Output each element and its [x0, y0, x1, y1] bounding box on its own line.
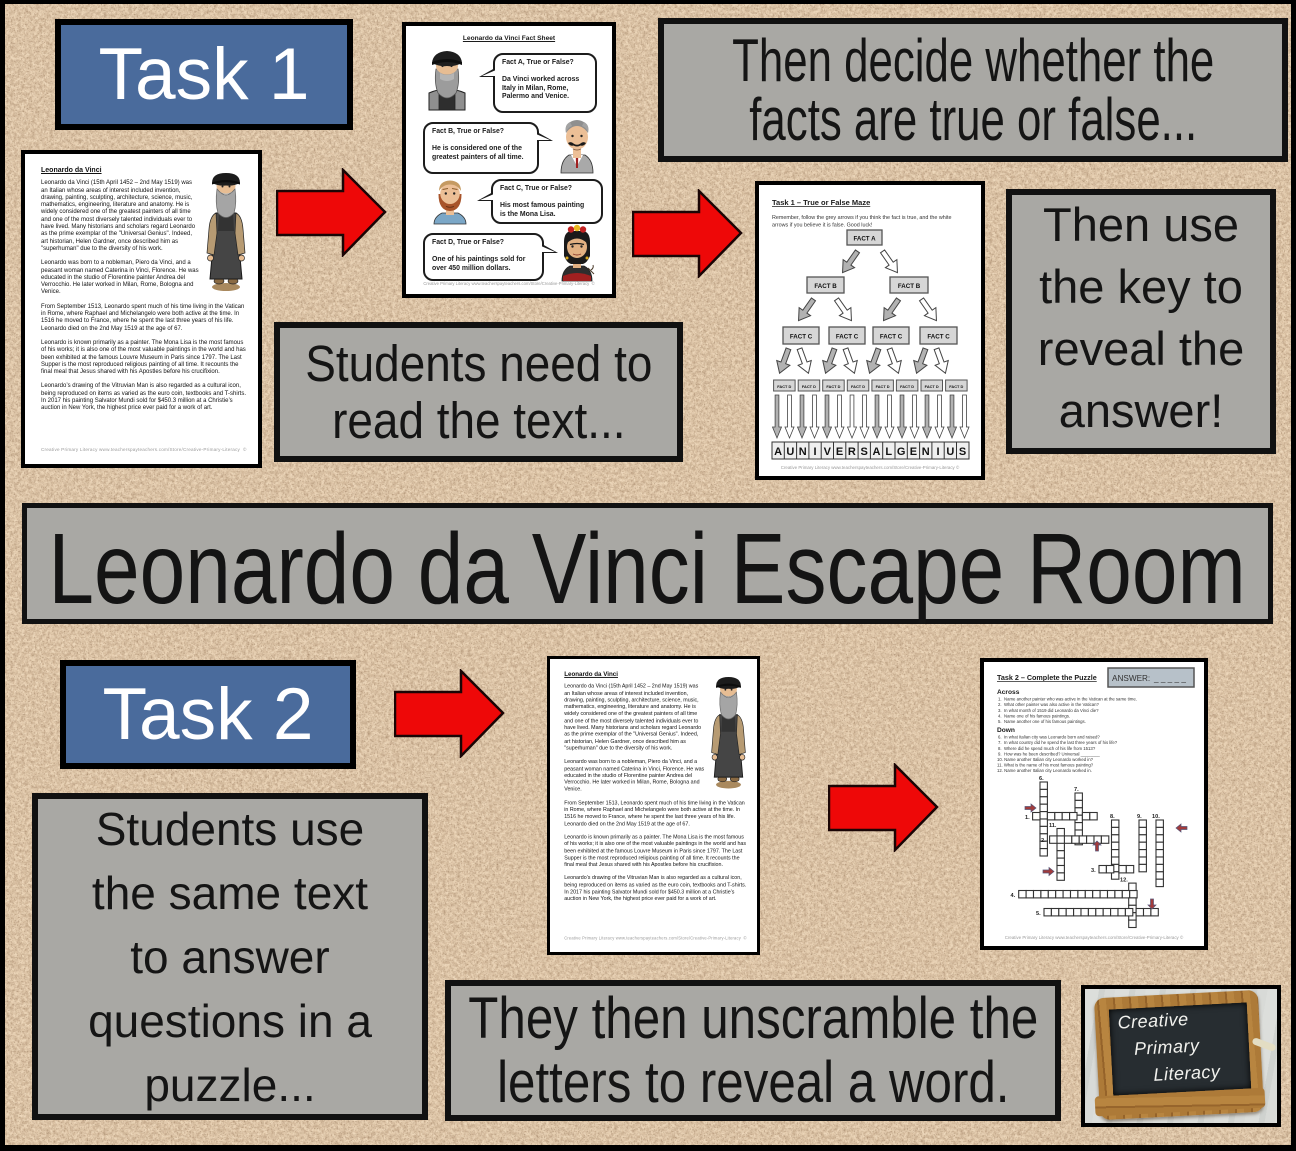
svg-text:2.: 2. [1041, 838, 1046, 844]
svg-text:Down: Down [997, 727, 1015, 734]
svg-text:E: E [910, 446, 917, 458]
svg-text:FACT C: FACT C [836, 334, 859, 341]
svg-text:FACT D: FACT D [925, 384, 939, 389]
svg-text:FACT D: FACT D [876, 384, 890, 389]
svg-text:E: E [836, 446, 843, 458]
svg-text:9.: 9. [1137, 814, 1142, 820]
svg-text:Task 2 – Complete the Puzzle: Task 2 – Complete the Puzzle [997, 673, 1097, 682]
svg-text:I: I [936, 446, 939, 458]
svg-text:FACT B: FACT B [898, 283, 921, 290]
svg-text:arrows if you believe it is fa: arrows if you believe it is false. Good … [772, 223, 873, 229]
svg-text:7.: 7. [1074, 787, 1079, 793]
svg-text:1.: 1. [1025, 815, 1030, 821]
svg-text:I: I [813, 446, 816, 458]
svg-text:U: U [786, 446, 794, 458]
svg-text:4.: 4. [1011, 893, 1016, 899]
svg-text:FACT D: FACT D [777, 384, 791, 389]
svg-text:U: U [946, 446, 954, 458]
svg-text:R: R [848, 446, 856, 458]
svg-text:4. Name one of his famous pai: 4. Name one of his famous paintings. [998, 713, 1070, 718]
svg-text:Task 1 – True or False Maze: Task 1 – True or False Maze [772, 198, 870, 207]
svg-text:Creative Primary Literacy www.: Creative Primary Literacy www.teacherspa… [781, 465, 960, 470]
svg-text:_ _ _ _ _: _ _ _ _ _ [1153, 674, 1186, 683]
svg-text:FACT B: FACT B [814, 283, 837, 290]
svg-text:9. How was he been described?: 9. How was he been described? Universal … [998, 751, 1100, 756]
svg-text:FACT A: FACT A [853, 236, 876, 243]
svg-text:FACT D: FACT D [802, 384, 816, 389]
svg-text:12.: 12. [1120, 878, 1128, 884]
svg-text:12. Name another Italian city: 12. Name another Italian city Leonardo w… [997, 768, 1092, 773]
svg-text:10.: 10. [1152, 814, 1160, 820]
svg-text:S: S [861, 446, 868, 458]
svg-text:A: A [873, 446, 881, 458]
svg-text:FACT D: FACT D [949, 384, 963, 389]
svg-text:8. Where did he spend much of: 8. Where did he spend much of his life f… [998, 746, 1096, 751]
svg-text:Across: Across [997, 689, 1020, 696]
svg-text:FACT C: FACT C [880, 334, 903, 341]
svg-text:10. Name another Italian city: 10. Name another Italian city Leonardo w… [997, 757, 1094, 762]
svg-text:5.: 5. [1036, 911, 1041, 917]
svg-text:FACT C: FACT C [790, 334, 813, 341]
svg-text:6. In what Italian city was L: 6. In what Italian city was Leonardo bor… [998, 735, 1100, 740]
svg-text:2. What other painter was als: 2. What other painter was also active in… [998, 702, 1100, 707]
svg-text:FACT D: FACT D [826, 384, 840, 389]
svg-text:3.: 3. [1091, 868, 1096, 874]
svg-text:5. Name another one of his fa: 5. Name another one of his famous painti… [998, 719, 1086, 724]
svg-text:11. What is the name of his mo: 11. What is the name of his most famous … [997, 763, 1094, 768]
svg-text:1. Name another painter who w: 1. Name another painter who was active i… [998, 697, 1137, 702]
svg-text:11.: 11. [1049, 823, 1057, 829]
svg-text:ANSWER:: ANSWER: [1112, 674, 1150, 683]
svg-text:FACT C: FACT C [927, 334, 950, 341]
svg-text:6.: 6. [1039, 776, 1044, 782]
svg-text:V: V [824, 446, 832, 458]
svg-text:L: L [885, 446, 892, 458]
svg-text:7. In what country did he spe: 7. In what country did he spend the last… [998, 740, 1118, 745]
svg-text:S: S [959, 446, 966, 458]
svg-text:Creative Primary Literacy www.: Creative Primary Literacy www.teacherspa… [1005, 935, 1184, 940]
svg-text:FACT D: FACT D [900, 384, 914, 389]
svg-text:8.: 8. [1110, 814, 1115, 820]
svg-text:N: N [799, 446, 807, 458]
svg-text:A: A [774, 446, 782, 458]
svg-text:Remember, follow the grey arro: Remember, follow the grey arrows if you … [772, 215, 951, 221]
svg-text:FACT D: FACT D [851, 384, 865, 389]
svg-text:3. In what month of 1519 did: 3. In what month of 1519 did Leonardo da… [998, 708, 1099, 713]
svg-text:N: N [922, 446, 930, 458]
svg-text:G: G [897, 446, 906, 458]
